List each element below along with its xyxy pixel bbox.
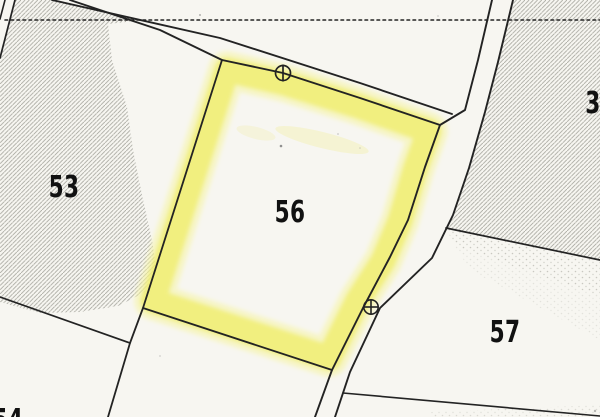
benchmark-circle-cross-marker-icon	[364, 300, 378, 314]
bottom-edge-stipple	[430, 405, 600, 417]
parcel-3-hatch-area	[446, 0, 600, 260]
parcel-53-hatch-area	[0, 0, 156, 313]
parcel-label-57: 57	[490, 318, 521, 348]
parcel-label-54: 54	[0, 406, 23, 417]
cadastral-map: 53 56 57 3 54	[0, 0, 600, 417]
edge-line-topleft-1	[0, 0, 5, 19]
parcel-label-56: 56	[275, 198, 306, 228]
parcel-label-53: 53	[49, 173, 80, 203]
parcel-label-3: 3	[585, 89, 600, 119]
